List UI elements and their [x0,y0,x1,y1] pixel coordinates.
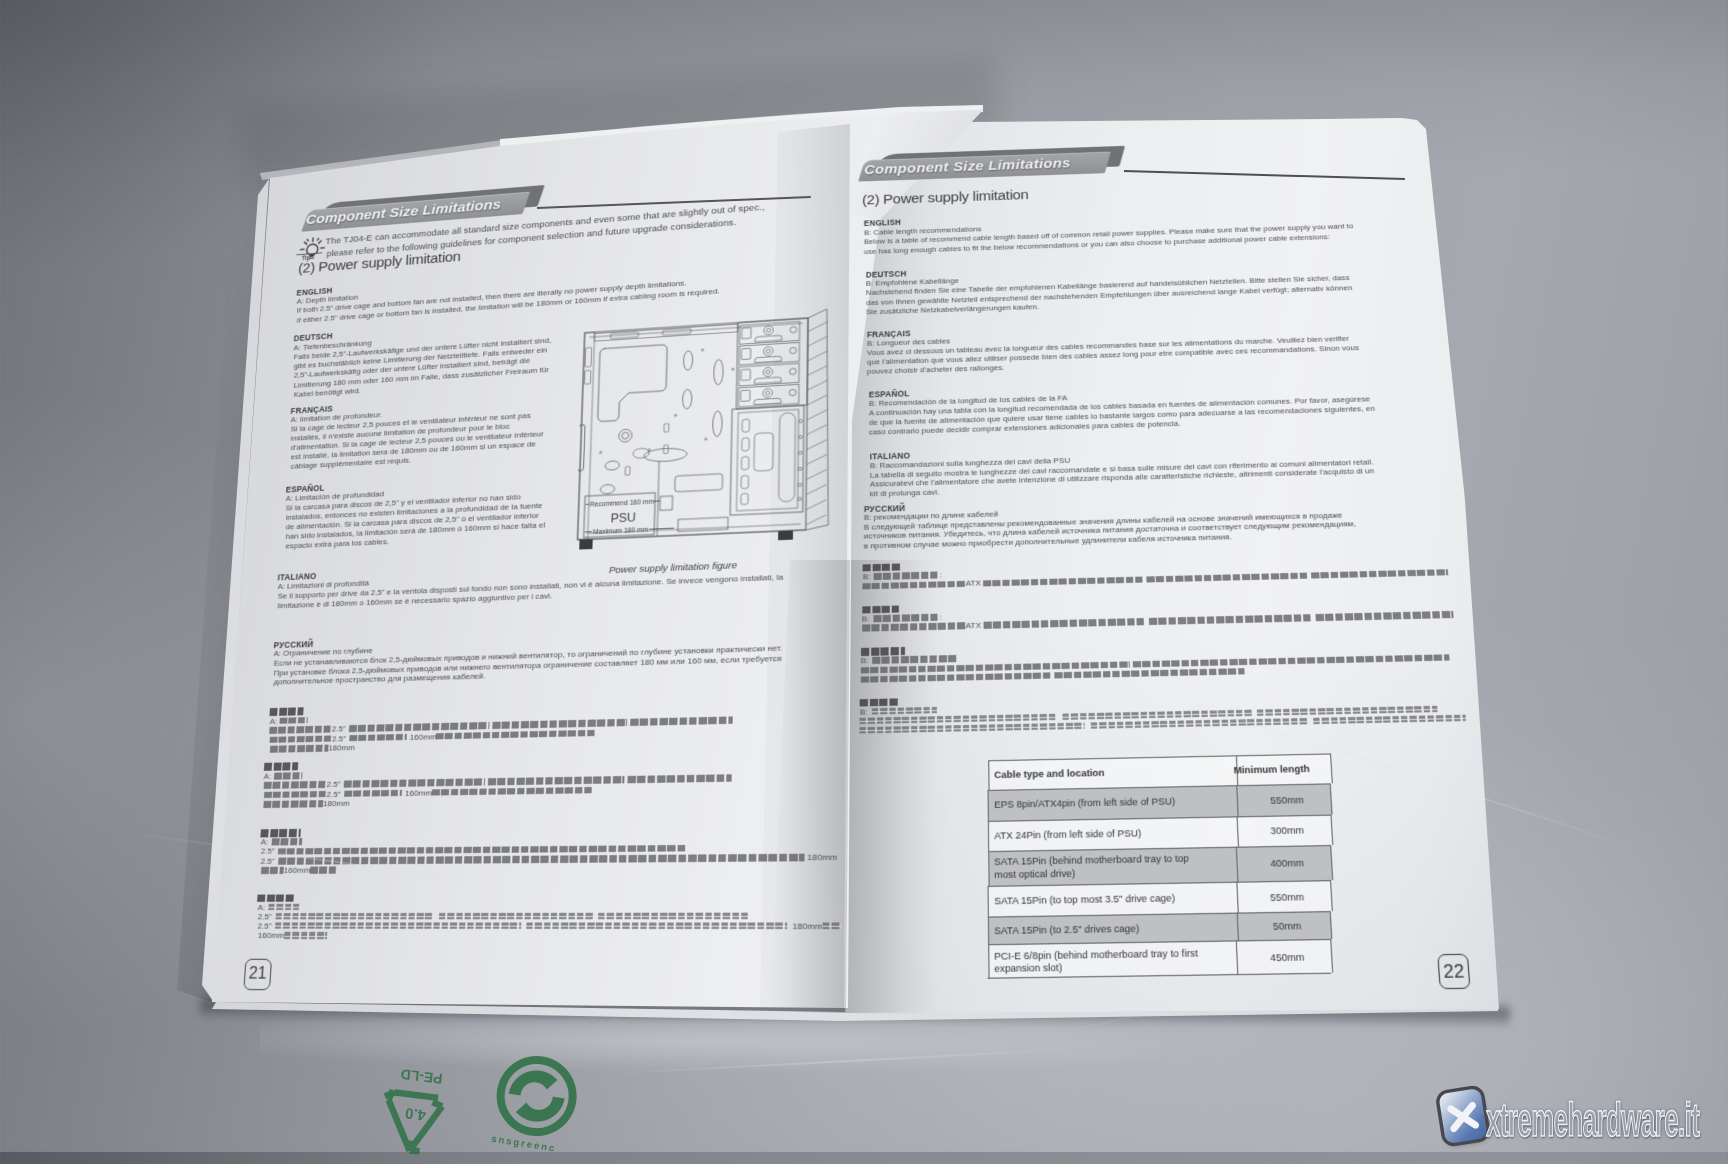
svg-text:PSU: PSU [610,512,636,526]
svg-text:PE-LD: PE-LD [400,1066,444,1087]
svg-text:4.0: 4.0 [404,1104,427,1123]
svg-text:Recommend 160 mm: Recommend 160 mm [590,499,655,509]
svg-text:snsgreenc: snsgreenc [490,1134,556,1152]
